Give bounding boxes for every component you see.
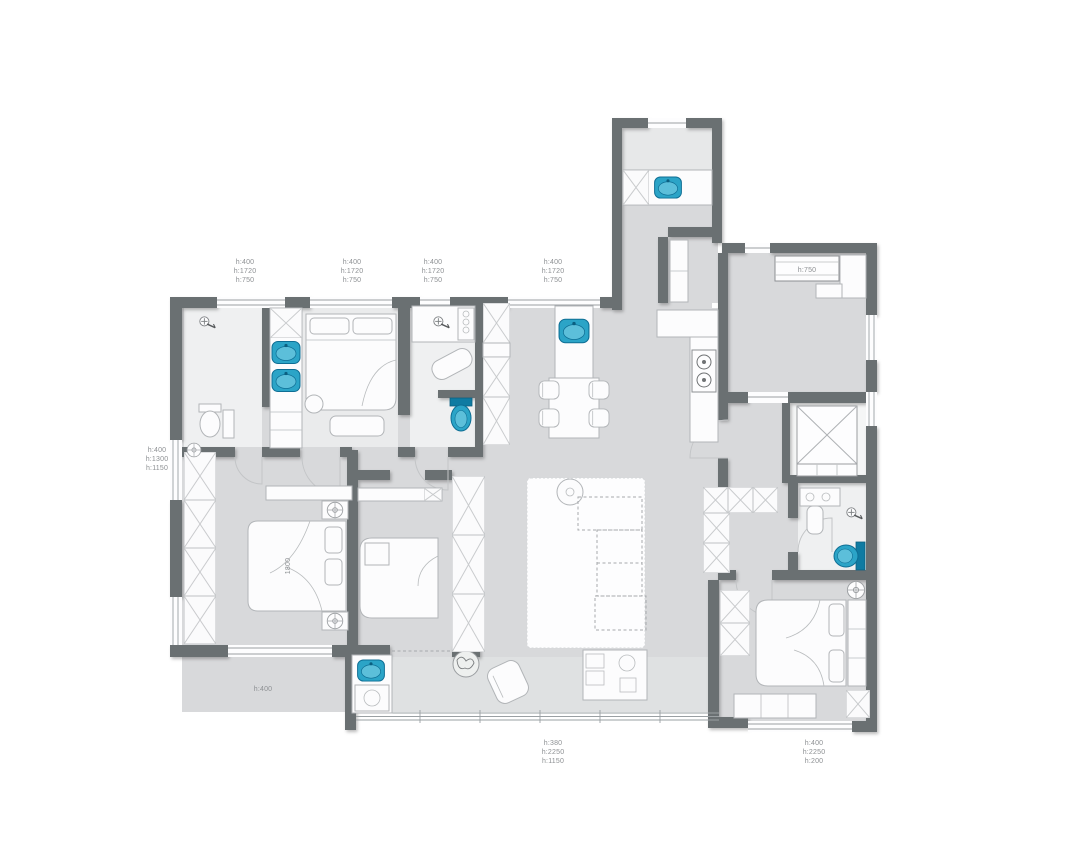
svg-text:h:1150: h:1150: [146, 465, 168, 472]
floor-drain-icon: [187, 443, 201, 457]
compass-icon: [327, 613, 342, 628]
stool: [305, 395, 323, 413]
balcony-floor: [356, 657, 719, 712]
svg-text:h:1720: h:1720: [422, 268, 445, 275]
floor-plan-page: 1800: [0, 0, 1080, 855]
svg-text:h:400: h:400: [805, 740, 824, 747]
window-bottom-left: [228, 645, 332, 657]
toilet-white: [199, 404, 221, 437]
vanity-sink-icon: [272, 342, 300, 364]
bedroom2-wardrobe: [452, 476, 485, 652]
stove-icon: [692, 350, 716, 392]
bedroom2-bed: [360, 538, 438, 618]
wardrobe-x-icon: [623, 170, 649, 205]
bedroom3-bed: [756, 600, 846, 686]
svg-text:h:750: h:750: [798, 267, 817, 274]
compass-icon: [847, 581, 864, 598]
svg-text:h:2250: h:2250: [803, 749, 826, 756]
svg-text:h:400: h:400: [544, 259, 563, 266]
window-right-2: [866, 392, 877, 426]
elevator-shaft: [797, 406, 857, 476]
window-right-1: [866, 315, 877, 360]
side-table: [557, 479, 583, 505]
floor-plan-drawing: 1800: [0, 0, 1080, 855]
window-label-3: h:400 h:1720 h:750: [422, 259, 445, 284]
window-label-4: h:400 h:1720 h:750: [542, 259, 565, 284]
window-label-balcony: h:380 h:2250 h:1150: [542, 740, 565, 765]
dining-chair-icon: [539, 381, 559, 399]
plant-icon: [453, 651, 479, 677]
window-left-2: [170, 597, 182, 645]
svg-text:h:1150: h:1150: [542, 758, 564, 765]
window-bedroom3: [748, 721, 852, 732]
window-label-kitchen: h:750: [798, 267, 817, 274]
toilet-teal: [450, 398, 472, 431]
window-left-1: [170, 440, 182, 500]
svg-text:h:750: h:750: [544, 277, 563, 284]
laundry-sink-icon: [358, 660, 385, 681]
svg-text:h:2250: h:2250: [542, 749, 565, 756]
window-label-2: h:400 h:1720 h:750: [341, 259, 364, 284]
washbasin: [458, 308, 474, 340]
bed-bench: [330, 416, 384, 436]
svg-text:h:400: h:400: [424, 259, 443, 266]
svg-text:h:1300: h:1300: [146, 456, 169, 463]
kitchen-cabinet: [840, 255, 866, 298]
bedroom3-wardrobe: [720, 590, 750, 656]
dining-storage-column: [483, 303, 510, 445]
dining-chair-icon: [589, 409, 609, 427]
svg-text:h:750: h:750: [236, 277, 255, 284]
entry-sink-icon: [655, 177, 682, 198]
svg-text:h:400: h:400: [343, 259, 362, 266]
bath-side-table: [223, 410, 234, 438]
master-wardrobe: [184, 452, 216, 644]
window-label-left: h:400 h:1300 h:1150: [146, 447, 169, 472]
window-label-1: h:400 h:1720 h:750: [234, 259, 257, 284]
window-kitchen-top: [745, 243, 770, 253]
vanity-sink-icon: [272, 370, 300, 392]
window-label-bottom-left: h:400: [254, 686, 273, 693]
window-kitchen-low: [748, 392, 788, 403]
window-top-1: [217, 297, 285, 308]
svg-text:h:380: h:380: [544, 740, 563, 747]
kitchen-counter-top: [657, 310, 718, 337]
bedroom1-bed: [306, 314, 396, 410]
svg-text:h:400: h:400: [236, 259, 255, 266]
washer-icon: [355, 685, 389, 711]
pedestal-basin: [807, 506, 823, 534]
laundry-corner: [352, 655, 392, 713]
svg-text:h:750: h:750: [343, 277, 362, 284]
svg-text:h:400: h:400: [148, 447, 167, 454]
master-bed: 1800: [248, 521, 346, 611]
svg-text:h:200: h:200: [805, 758, 824, 765]
vanity-column: [270, 308, 302, 448]
master-dresser: [266, 486, 352, 500]
compass-icon: [327, 502, 342, 517]
svg-text:h:400: h:400: [254, 686, 273, 693]
bedroom-3: [720, 581, 870, 718]
svg-text:h:1720: h:1720: [542, 268, 565, 275]
headboard-cabinet: [848, 600, 866, 686]
island-sink-icon: [559, 319, 589, 342]
dining-chair-icon: [539, 409, 559, 427]
window-label-bedroom3: h:400 h:2250 h:200: [803, 740, 826, 765]
entry-door-gap: [648, 118, 686, 128]
svg-text:h:750: h:750: [424, 277, 443, 284]
bed-width-label: 1800: [285, 558, 292, 574]
dining-chair-icon: [589, 381, 609, 399]
bedroom3-bench: [734, 694, 816, 718]
svg-text:h:1720: h:1720: [341, 268, 364, 275]
coffee-table: [583, 650, 647, 700]
svg-text:h:1720: h:1720: [234, 268, 257, 275]
kitchen-counter-small: [816, 284, 842, 298]
window-top-2: [310, 297, 392, 308]
